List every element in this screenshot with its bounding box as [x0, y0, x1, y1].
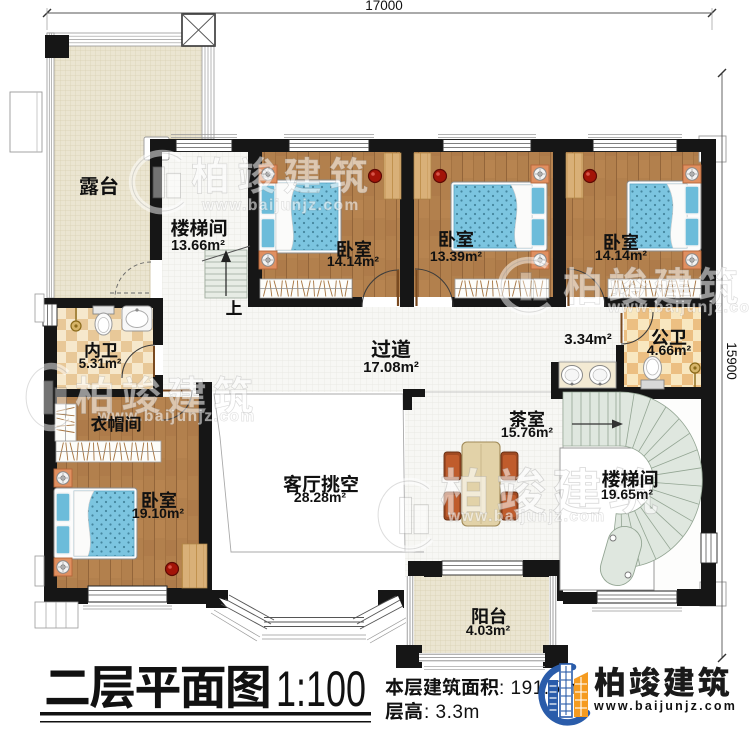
svg-text:15900: 15900 — [724, 342, 739, 380]
svg-text:www.baijunjz.com: www.baijunjz.com — [447, 508, 606, 525]
svg-text:www.baijunjz.com: www.baijunjz.com — [201, 197, 360, 214]
svg-text:28.28m²: 28.28m² — [294, 489, 346, 505]
svg-text:17.08m²: 17.08m² — [363, 359, 419, 376]
svg-text:14.14m²: 14.14m² — [327, 253, 379, 269]
svg-text:1:100: 1:100 — [276, 662, 366, 717]
svg-text:5.31m²: 5.31m² — [79, 356, 122, 371]
svg-text:4.66m²: 4.66m² — [647, 342, 692, 358]
svg-text:19.10m²: 19.10m² — [132, 505, 184, 521]
svg-text:www.baijunjz.com: www.baijunjz.com — [607, 299, 750, 316]
svg-text:13.39m²: 13.39m² — [430, 248, 482, 264]
svg-text:4.03m²: 4.03m² — [466, 622, 511, 638]
svg-text:15.76m²: 15.76m² — [501, 424, 553, 440]
svg-text:: 3.3m: : 3.3m — [424, 702, 480, 723]
svg-text:17000: 17000 — [365, 0, 403, 13]
svg-text:www.baijunjz.com: www.baijunjz.com — [593, 699, 737, 713]
svg-text:14.14m²: 14.14m² — [595, 247, 647, 263]
svg-text:19.65m²: 19.65m² — [601, 486, 653, 502]
svg-text:3.34m²: 3.34m² — [564, 331, 612, 348]
svg-text:13.66m²: 13.66m² — [171, 238, 225, 254]
